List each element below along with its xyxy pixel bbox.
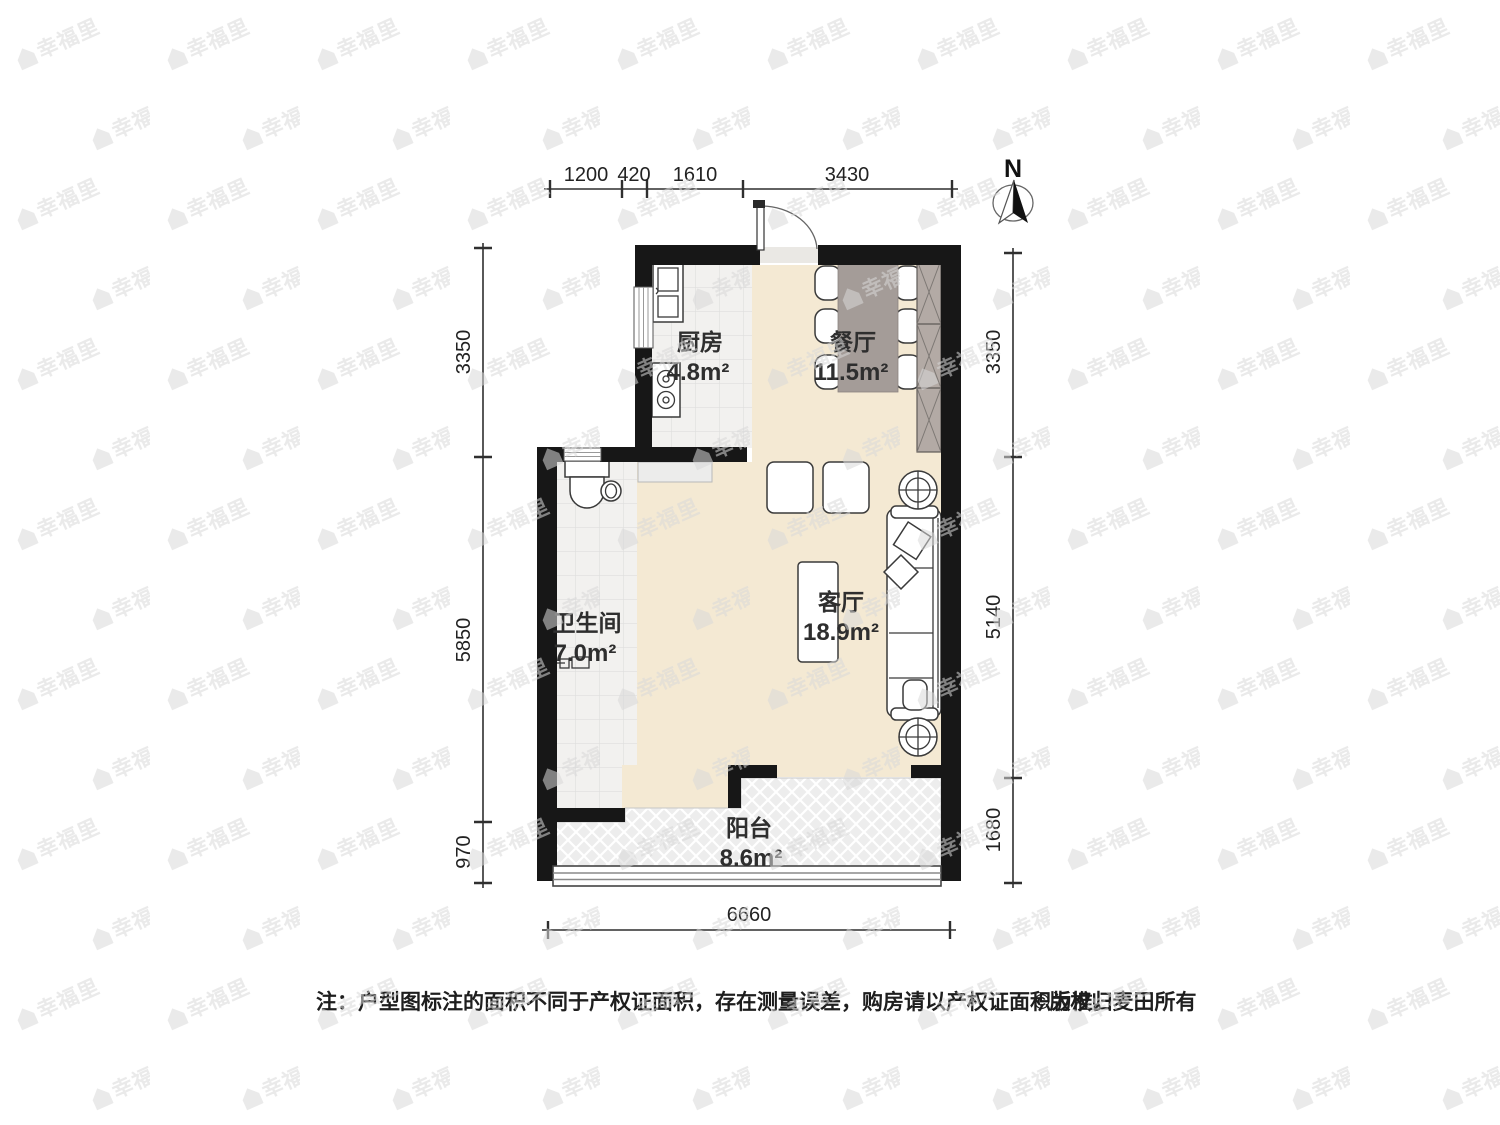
floor-plan-svg: 幸福里 幸福里 — [0, 0, 1500, 1125]
floor-plan-page: 幸福里 幸福里 — [0, 0, 1500, 1125]
watermark-overlay — [0, 0, 1500, 1125]
